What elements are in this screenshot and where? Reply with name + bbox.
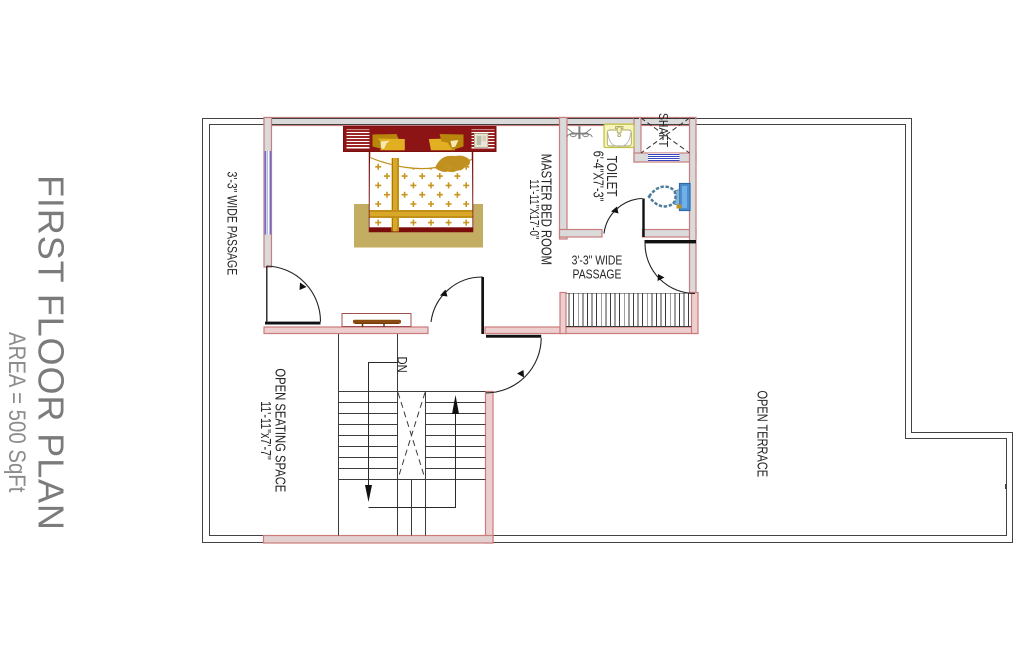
- svg-text:3'-3" WIDE: 3'-3" WIDE: [572, 253, 623, 267]
- svg-text:PASSAGE: PASSAGE: [573, 267, 622, 281]
- svg-text:3'-3" WIDE PASSAGE: 3'-3" WIDE PASSAGE: [224, 172, 240, 276]
- svg-text:AREA = 500 SqFt: AREA = 500 SqFt: [4, 332, 31, 493]
- svg-text:DN: DN: [394, 357, 409, 373]
- svg-text:11'-11"x7'-7": 11'-11"x7'-7": [258, 401, 275, 460]
- svg-text:FIRST FLOOR PLAN: FIRST FLOOR PLAN: [31, 175, 72, 531]
- svg-text:OPEN TERRACE: OPEN TERRACE: [754, 391, 771, 478]
- svg-text:11'-11"X17'-0": 11'-11"X17'-0": [527, 179, 541, 239]
- svg-text:6'-4"X7'-3": 6'-4"X7'-3": [590, 151, 607, 202]
- svg-text:SHAFT: SHAFT: [655, 113, 669, 147]
